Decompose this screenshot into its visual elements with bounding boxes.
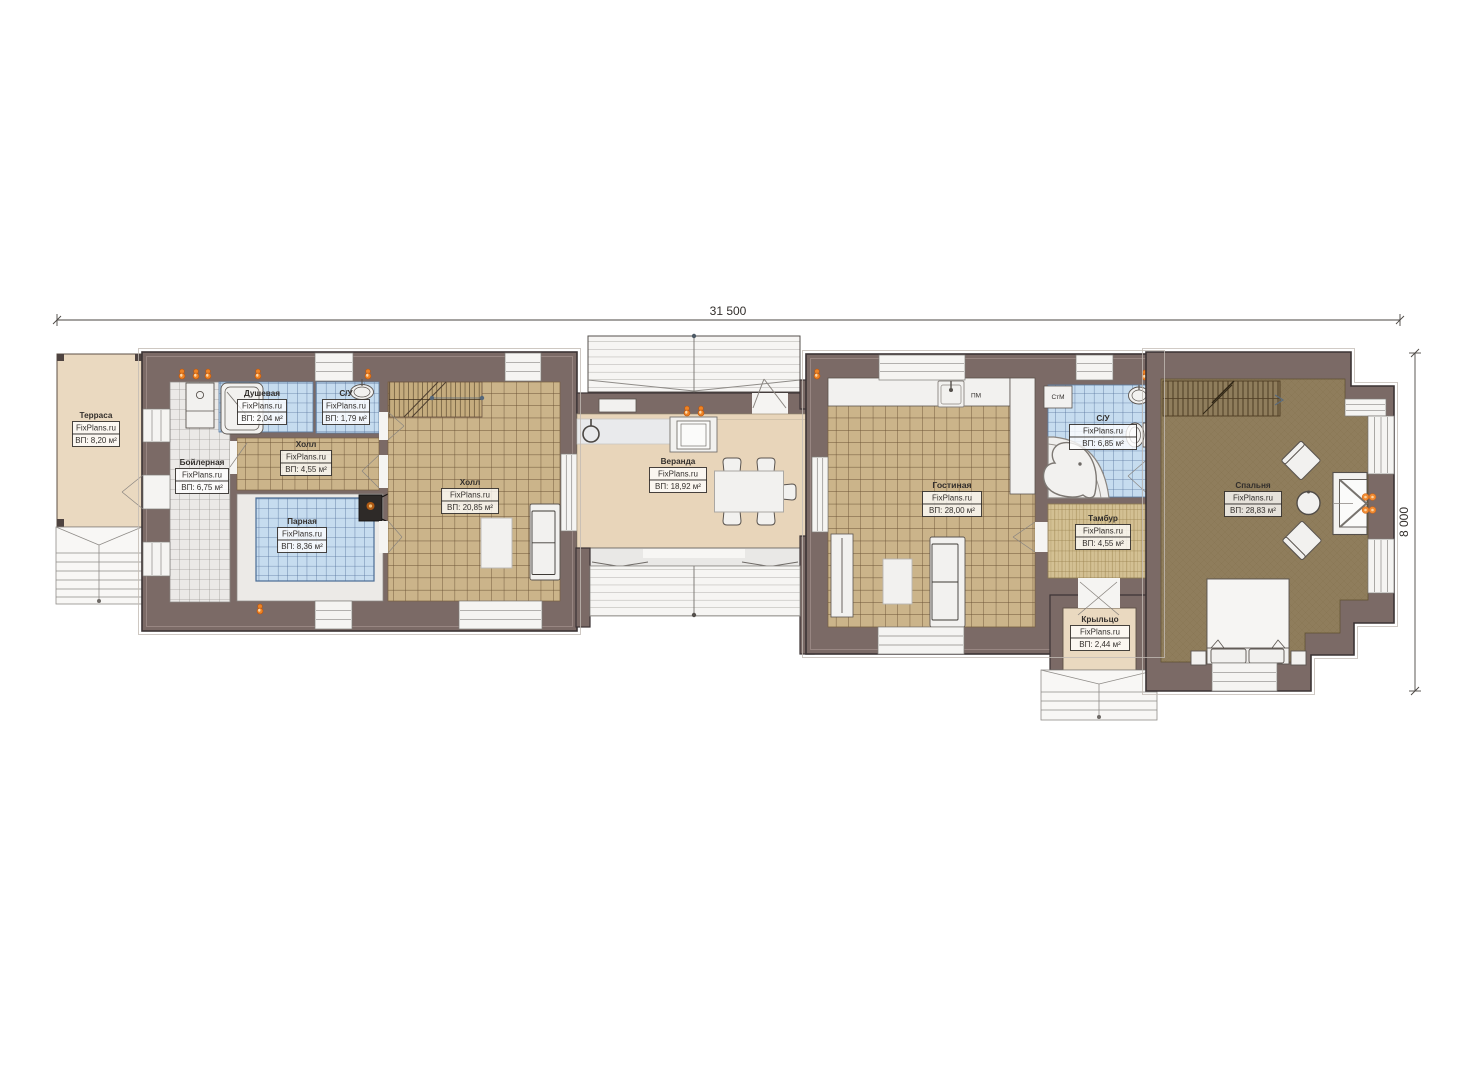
svg-text:FixPlans.ru: FixPlans.ru <box>76 424 116 433</box>
svg-text:31 500: 31 500 <box>710 304 747 318</box>
svg-text:8 000: 8 000 <box>1397 507 1411 537</box>
svg-text:FixPlans.ru: FixPlans.ru <box>932 494 972 503</box>
svg-text:Холл: Холл <box>296 440 317 449</box>
svg-text:FixPlans.ru: FixPlans.ru <box>658 470 698 479</box>
svg-text:FixPlans.ru: FixPlans.ru <box>182 471 222 480</box>
svg-text:FixPlans.ru: FixPlans.ru <box>1233 494 1273 503</box>
svg-text:ВП: 4,55 м²: ВП: 4,55 м² <box>1082 539 1124 548</box>
svg-text:ВП: 6,85 м²: ВП: 6,85 м² <box>1082 439 1124 448</box>
svg-text:ВП: 4,55 м²: ВП: 4,55 м² <box>285 465 327 474</box>
svg-text:FixPlans.ru: FixPlans.ru <box>1083 427 1123 436</box>
svg-text:FixPlans.ru: FixPlans.ru <box>242 402 282 411</box>
svg-text:Душевая: Душевая <box>244 389 280 398</box>
svg-text:Терраса: Терраса <box>80 411 113 420</box>
svg-text:FixPlans.ru: FixPlans.ru <box>1083 527 1123 536</box>
svg-text:ВП: 8,20 м²: ВП: 8,20 м² <box>75 436 117 445</box>
svg-text:FixPlans.ru: FixPlans.ru <box>286 453 326 462</box>
svg-text:ВП: 8,36 м²: ВП: 8,36 м² <box>281 542 323 551</box>
svg-text:С/У: С/У <box>339 389 353 398</box>
svg-text:ВП: 28,83 м²: ВП: 28,83 м² <box>1230 506 1276 515</box>
svg-text:СтМ: СтМ <box>1051 394 1064 401</box>
svg-text:ВП: 2,04 м²: ВП: 2,04 м² <box>241 414 283 423</box>
svg-text:ВП: 6,75 м²: ВП: 6,75 м² <box>181 483 223 492</box>
svg-text:Бойлерная: Бойлерная <box>180 458 225 467</box>
svg-text:Спальня: Спальня <box>1235 481 1271 490</box>
svg-text:ПМ: ПМ <box>971 393 981 400</box>
svg-text:Веранда: Веранда <box>661 457 696 466</box>
svg-text:С/У: С/У <box>1096 414 1110 423</box>
svg-text:Тамбур: Тамбур <box>1088 513 1118 523</box>
svg-text:ВП: 18,92 м²: ВП: 18,92 м² <box>655 482 701 491</box>
svg-text:Крыльцо: Крыльцо <box>1081 615 1118 624</box>
svg-text:Холл: Холл <box>460 478 481 487</box>
svg-text:ВП: 1,79 м²: ВП: 1,79 м² <box>325 414 367 423</box>
svg-text:Парная: Парная <box>287 517 317 526</box>
svg-text:ВП: 2,44 м²: ВП: 2,44 м² <box>1079 640 1121 649</box>
svg-text:FixPlans.ru: FixPlans.ru <box>450 491 490 500</box>
svg-text:ВП: 28,00 м²: ВП: 28,00 м² <box>929 506 975 515</box>
svg-text:FixPlans.ru: FixPlans.ru <box>1080 628 1120 637</box>
svg-text:FixPlans.ru: FixPlans.ru <box>326 402 366 411</box>
svg-text:FixPlans.ru: FixPlans.ru <box>282 530 322 539</box>
svg-text:Гостиная: Гостиная <box>932 480 971 490</box>
svg-text:ВП: 20,85 м²: ВП: 20,85 м² <box>447 503 493 512</box>
